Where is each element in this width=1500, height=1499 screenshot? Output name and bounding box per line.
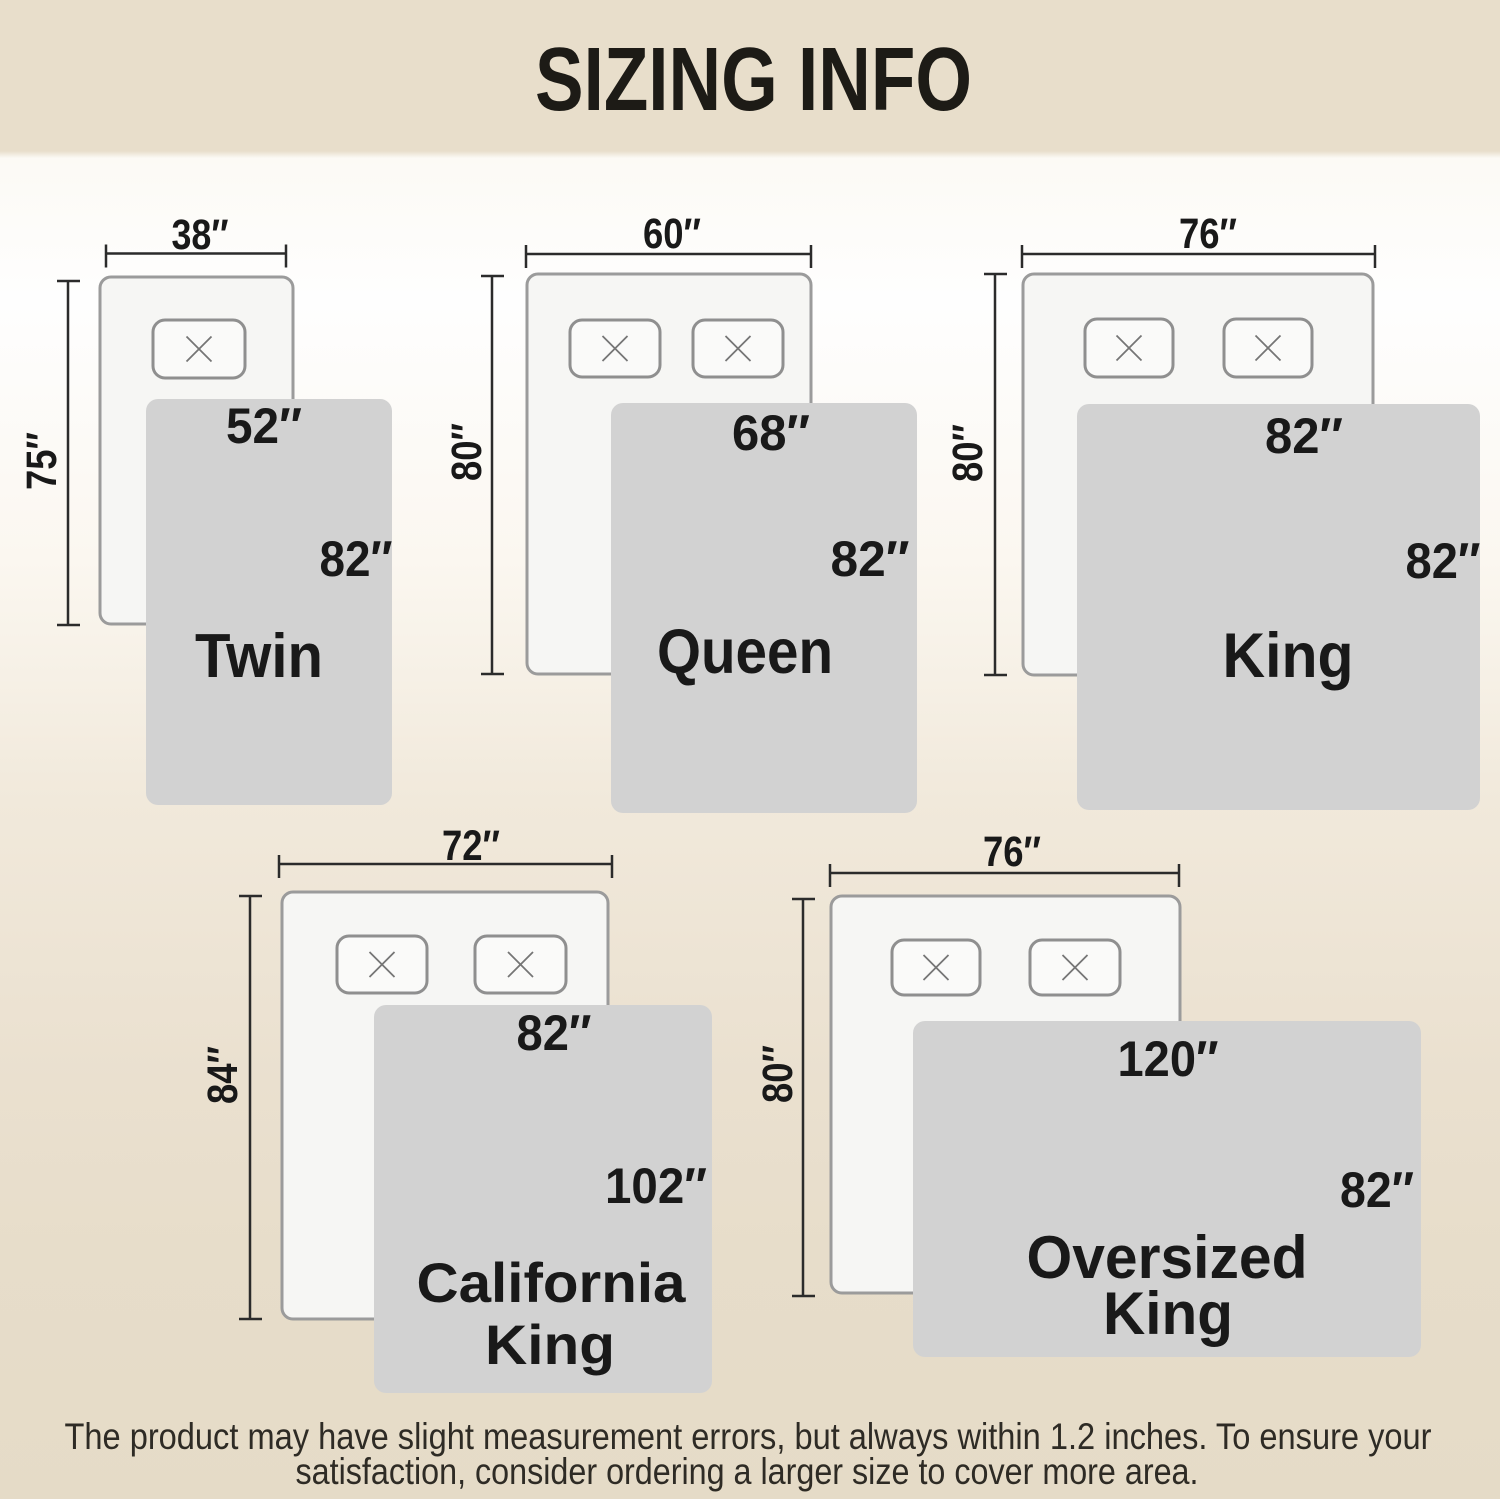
svg-text:82″: 82″ xyxy=(1265,408,1343,464)
svg-text:satisfaction, consider orderin: satisfaction, consider ordering a larger… xyxy=(296,1451,1199,1492)
svg-text:38″: 38″ xyxy=(172,211,229,259)
svg-text:82″: 82″ xyxy=(831,531,910,587)
svg-text:80″: 80″ xyxy=(754,1045,802,1103)
svg-text:Twin: Twin xyxy=(195,622,323,691)
svg-text:King: King xyxy=(1223,621,1354,691)
svg-text:75″: 75″ xyxy=(18,432,66,490)
svg-text:102″: 102″ xyxy=(605,1158,707,1214)
svg-text:82″: 82″ xyxy=(517,1005,592,1061)
svg-text:SIZING INFO: SIZING INFO xyxy=(535,30,972,130)
svg-text:82″: 82″ xyxy=(1406,533,1481,589)
svg-text:60″: 60″ xyxy=(643,210,701,258)
svg-text:72″: 72″ xyxy=(442,822,500,870)
svg-text:76″: 76″ xyxy=(983,828,1041,876)
svg-text:76″: 76″ xyxy=(1179,210,1237,258)
svg-text:Queen: Queen xyxy=(657,617,833,687)
svg-text:84″: 84″ xyxy=(199,1046,247,1104)
svg-text:52″: 52″ xyxy=(226,398,302,454)
svg-text:82″: 82″ xyxy=(320,531,393,587)
svg-text:King: King xyxy=(485,1313,615,1376)
svg-text:120″: 120″ xyxy=(1118,1031,1219,1087)
svg-text:68″: 68″ xyxy=(732,405,810,461)
svg-text:California: California xyxy=(417,1251,687,1314)
svg-text:80″: 80″ xyxy=(443,423,491,481)
svg-text:80″: 80″ xyxy=(944,424,992,482)
svg-text:82″: 82″ xyxy=(1340,1162,1414,1218)
svg-text:King: King xyxy=(1103,1280,1233,1347)
